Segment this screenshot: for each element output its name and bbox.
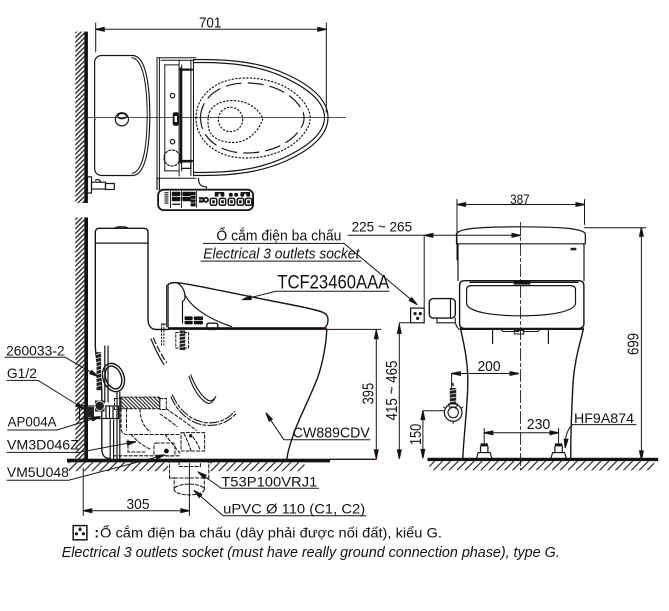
svg-text:701: 701 (199, 14, 222, 31)
svg-text:Electrical 3 outlets socket (m: Electrical 3 outlets socket (must have r… (62, 545, 560, 561)
svg-text::: : (94, 525, 99, 542)
svg-text:CW889CDV: CW889CDV (293, 425, 370, 442)
svg-text:225 ~ 265: 225 ~ 265 (352, 219, 413, 235)
svg-text:Ổ cắm điện ba chấu: Ổ cắm điện ba chấu (216, 227, 341, 245)
svg-text:415 ~ 465: 415 ~ 465 (384, 360, 401, 420)
svg-text:Electrical 3 outlets socket: Electrical 3 outlets socket (203, 246, 360, 263)
svg-text:HF9A874: HF9A874 (574, 410, 634, 426)
svg-text:VM5U048: VM5U048 (7, 464, 69, 480)
svg-text:230: 230 (527, 416, 551, 433)
svg-text:260033-2: 260033-2 (6, 343, 65, 359)
svg-text:305: 305 (127, 496, 150, 513)
svg-text:387: 387 (510, 191, 530, 207)
svg-text:699: 699 (625, 333, 642, 355)
svg-text:T53P100VRJ1: T53P100VRJ1 (221, 473, 317, 489)
svg-text:uPVC Ø 110 (C1, C2): uPVC Ø 110 (C1, C2) (223, 500, 365, 516)
svg-text:TCF23460AAA: TCF23460AAA (277, 272, 389, 294)
svg-text:VM3D046Z: VM3D046Z (7, 437, 79, 453)
svg-text:200: 200 (478, 358, 501, 375)
svg-text:Ổ cắm điện ba chấu (dây phải đ: Ổ cắm điện ba chấu (dây phải được nối đấ… (100, 523, 442, 540)
svg-text:395: 395 (360, 383, 377, 405)
svg-text:150: 150 (408, 424, 425, 446)
svg-text:G1/2: G1/2 (7, 365, 37, 381)
svg-text:AP004A: AP004A (8, 413, 58, 429)
